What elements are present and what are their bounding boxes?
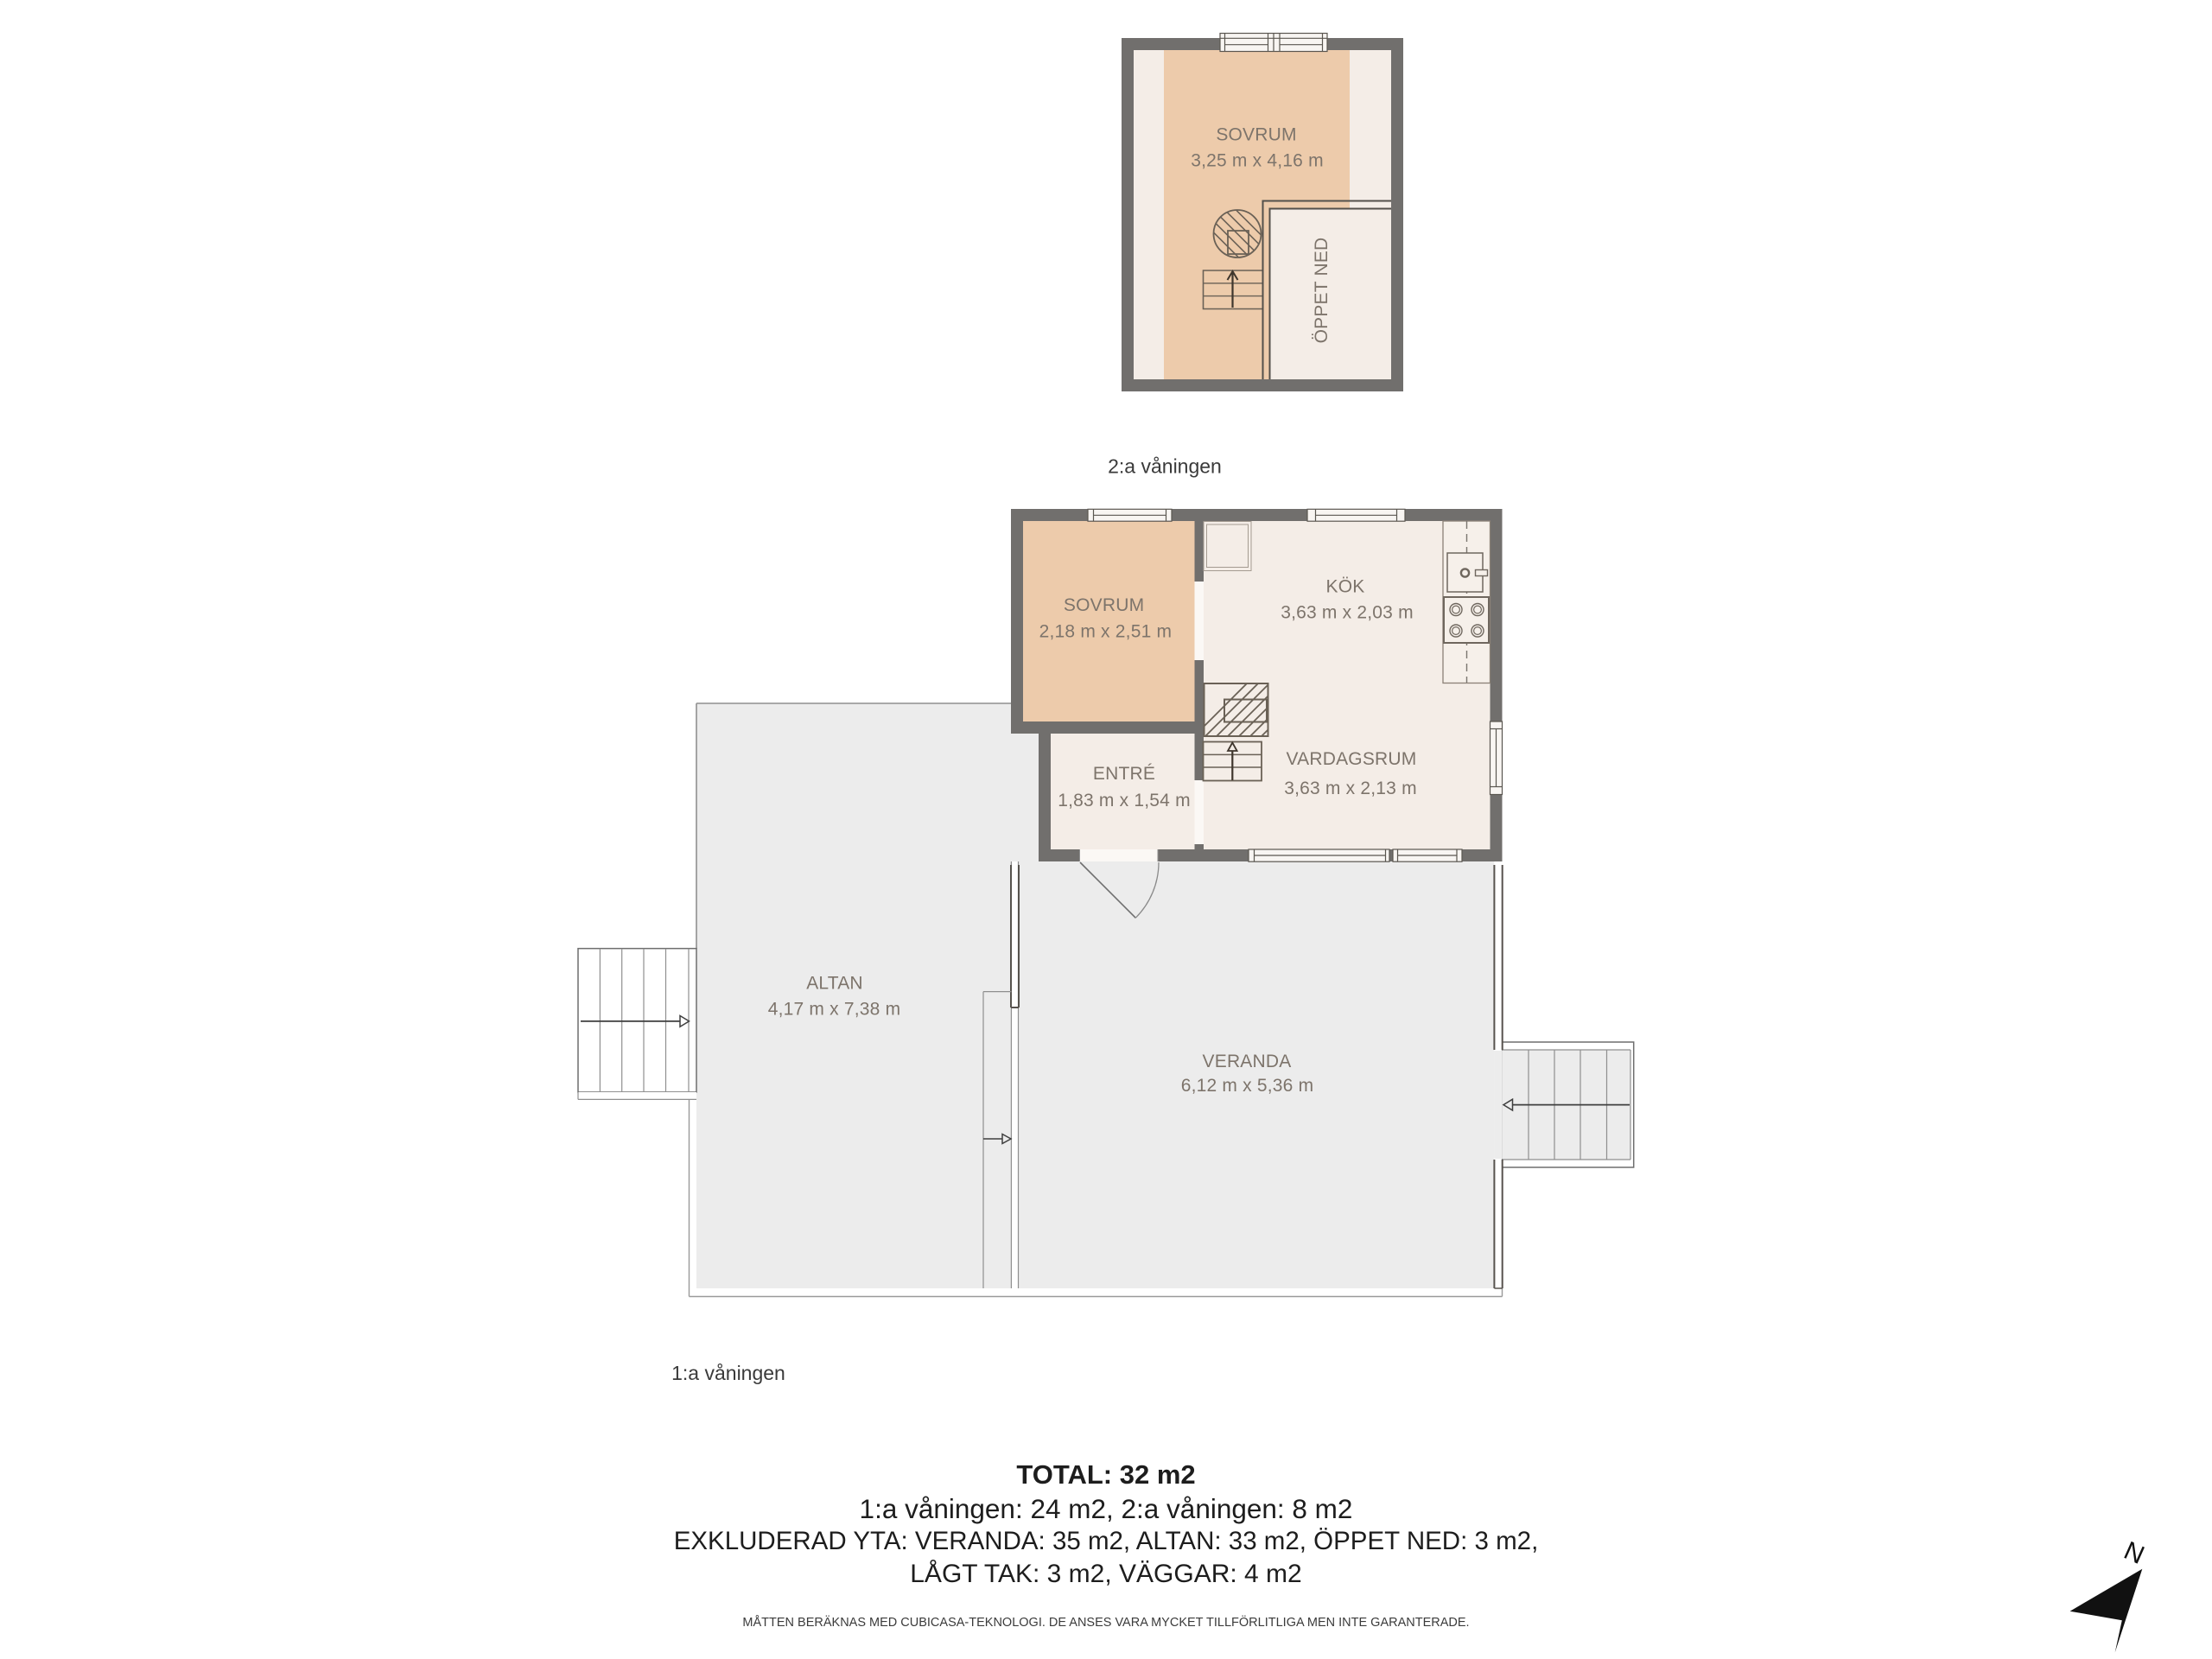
svg-text:SOVRUM: SOVRUM (1064, 595, 1144, 615)
svg-text:4,17 m x 7,38 m: 4,17 m x 7,38 m (768, 1000, 901, 1020)
svg-text:2,18 m x 2,51 m: 2,18 m x 2,51 m (1039, 622, 1173, 642)
svg-text:N: N (2120, 1536, 2148, 1570)
svg-text:SOVRUM: SOVRUM (1216, 125, 1296, 145)
svg-text:ALTAN: ALTAN (806, 974, 863, 994)
svg-text:3,63 m x 2,13 m: 3,63 m x 2,13 m (1284, 779, 1417, 798)
svg-text:VARDAGSRUM: VARDAGSRUM (1287, 749, 1417, 769)
svg-text:1:a våningen: 1:a våningen (671, 1362, 785, 1384)
svg-text:3,63 m x 2,03 m: 3,63 m x 2,03 m (1281, 603, 1414, 623)
svg-text:6,12 m x 5,36 m: 6,12 m x 5,36 m (1181, 1076, 1314, 1096)
svg-text:EXKLUDERAD YTA: VERANDA: 35 m2: EXKLUDERAD YTA: VERANDA: 35 m2, ALTAN: 3… (674, 1527, 1539, 1555)
svg-text:2:a våningen: 2:a våningen (1108, 455, 1222, 478)
svg-text:1:a våningen: 24 m2, 2:a vånin: 1:a våningen: 24 m2, 2:a våningen: 8 m2 (860, 1493, 1353, 1524)
svg-text:KÖK: KÖK (1326, 577, 1365, 597)
svg-text:MÅTTEN BERÄKNAS MED CUBICASA-T: MÅTTEN BERÄKNAS MED CUBICASA-TEKNOLOGI. … (742, 1614, 1469, 1630)
svg-text:ÖPPET NED: ÖPPET NED (1312, 238, 1332, 344)
svg-text:LÅGT TAK: 3 m2, VÄGGAR: 4 m2: LÅGT TAK: 3 m2, VÄGGAR: 4 m2 (910, 1560, 1302, 1588)
svg-text:3,25 m x 4,16 m: 3,25 m x 4,16 m (1191, 151, 1324, 171)
svg-text:ENTRÉ: ENTRÉ (1093, 764, 1155, 784)
svg-text:1,83 m x 1,54 m: 1,83 m x 1,54 m (1058, 791, 1191, 810)
svg-text:TOTAL: 32 m2: TOTAL: 32 m2 (1016, 1459, 1195, 1490)
svg-text:VERANDA: VERANDA (1203, 1052, 1292, 1071)
